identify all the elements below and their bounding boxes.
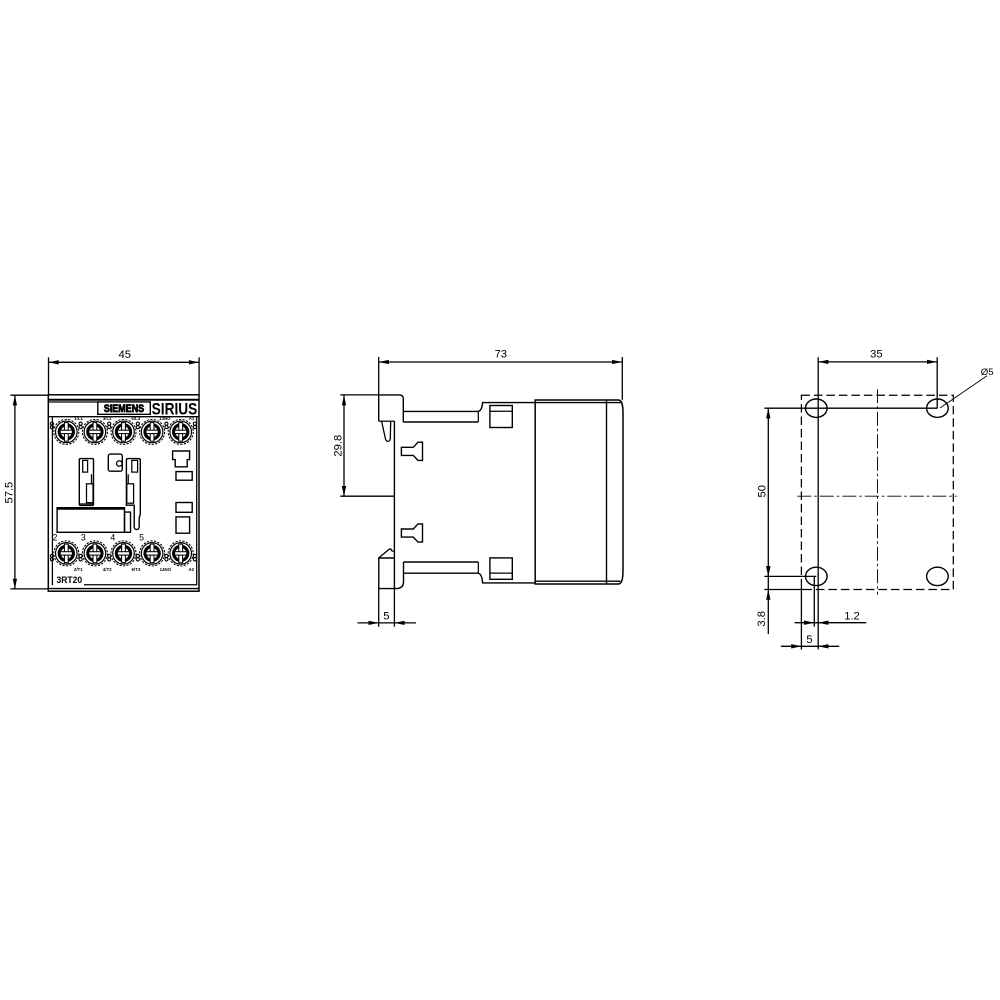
svg-text:45: 45 — [118, 349, 130, 361]
svg-text:29.8: 29.8 — [332, 435, 344, 457]
svg-text:2: 2 — [53, 532, 58, 542]
svg-text:5: 5 — [383, 611, 389, 623]
svg-text:35: 35 — [870, 348, 882, 360]
svg-text:57.5: 57.5 — [3, 482, 15, 504]
svg-text:4: 4 — [110, 532, 115, 542]
svg-text:3.8: 3.8 — [756, 611, 768, 627]
svg-text:Ø5: Ø5 — [981, 367, 994, 378]
svg-text:73: 73 — [495, 349, 507, 361]
svg-text:3/L2: 3/L2 — [103, 416, 112, 421]
svg-text:A2: A2 — [188, 567, 194, 572]
svg-text:5/L3: 5/L3 — [131, 416, 140, 421]
svg-text:1.2: 1.2 — [844, 610, 860, 622]
svg-text:13NO: 13NO — [159, 416, 171, 421]
svg-text:2/T1: 2/T1 — [74, 567, 83, 572]
svg-text:SIEMENS: SIEMENS — [104, 403, 144, 415]
svg-text:3RT20: 3RT20 — [57, 575, 83, 585]
svg-text:1/L1: 1/L1 — [74, 416, 83, 421]
svg-text:14NO: 14NO — [160, 567, 172, 572]
svg-text:6/T3: 6/T3 — [132, 567, 141, 572]
svg-text:5: 5 — [806, 634, 812, 646]
svg-text:5: 5 — [139, 532, 144, 542]
svg-text:4/T2: 4/T2 — [103, 567, 112, 572]
svg-text:A1: A1 — [189, 416, 195, 421]
svg-text:50: 50 — [756, 485, 768, 497]
svg-text:3: 3 — [81, 532, 86, 542]
